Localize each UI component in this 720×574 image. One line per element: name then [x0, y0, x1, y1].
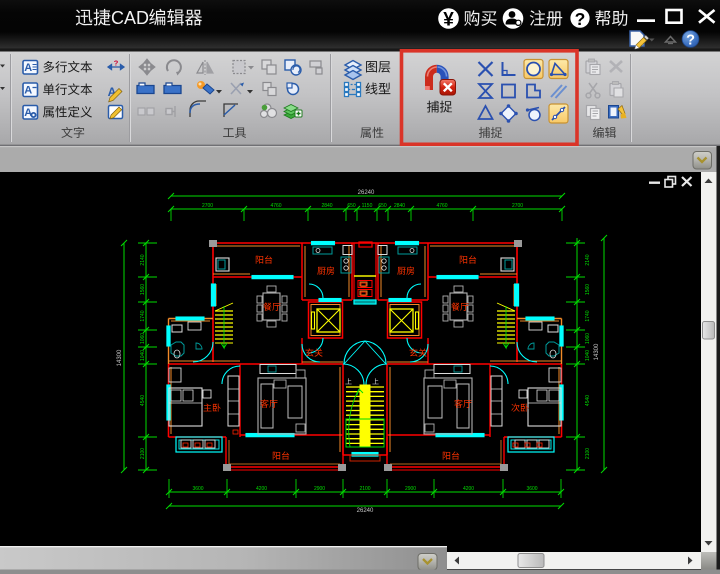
svg-text:2100: 2100: [585, 448, 591, 459]
svg-text:4760: 4760: [436, 203, 447, 209]
svg-text:2900: 2900: [314, 486, 325, 492]
svg-text:2140: 2140: [140, 254, 146, 265]
svg-text:2140: 2140: [585, 254, 591, 265]
svg-text:1060: 1060: [585, 333, 591, 344]
svg-text:1040: 1040: [585, 350, 591, 361]
svg-text:1060: 1060: [140, 333, 146, 344]
svg-text:14300: 14300: [117, 349, 123, 366]
svg-text:1560: 1560: [585, 284, 591, 295]
svg-text:2840: 2840: [394, 203, 405, 209]
svg-text:¥: ¥: [443, 10, 454, 31]
svg-text:2100: 2100: [140, 448, 146, 459]
svg-text:A: A: [24, 107, 32, 119]
svg-text:3600: 3600: [192, 486, 203, 492]
svg-text:?: ?: [575, 9, 586, 29]
svg-text:4760: 4760: [270, 203, 281, 209]
svg-text:2900: 2900: [405, 486, 416, 492]
svg-text:3600: 3600: [526, 486, 537, 492]
svg-text:4540: 4540: [585, 395, 591, 406]
svg-text:650: 650: [378, 203, 387, 209]
svg-text:?: ?: [114, 59, 119, 68]
svg-text:4200: 4200: [463, 486, 474, 492]
svg-text:1040: 1040: [140, 350, 146, 361]
svg-text:14300: 14300: [594, 343, 600, 360]
svg-text:26240: 26240: [358, 190, 375, 196]
svg-text:CAD: CAD: [111, 8, 149, 28]
svg-text:4200: 4200: [256, 486, 267, 492]
svg-text:A: A: [24, 85, 32, 97]
svg-text:?: ?: [686, 33, 695, 49]
svg-text:1740: 1740: [140, 310, 146, 321]
svg-text:1150: 1150: [362, 203, 373, 209]
svg-text:650: 650: [347, 203, 356, 209]
svg-text:A: A: [24, 62, 32, 74]
svg-text:4540: 4540: [140, 395, 146, 406]
svg-text:2840: 2840: [321, 203, 332, 209]
svg-text:2700: 2700: [202, 203, 213, 209]
svg-text:26240: 26240: [357, 508, 374, 514]
svg-text:2100: 2100: [359, 486, 370, 492]
svg-text:1560: 1560: [140, 284, 146, 295]
svg-text:2700: 2700: [512, 203, 523, 209]
svg-text:1740: 1740: [585, 310, 591, 321]
